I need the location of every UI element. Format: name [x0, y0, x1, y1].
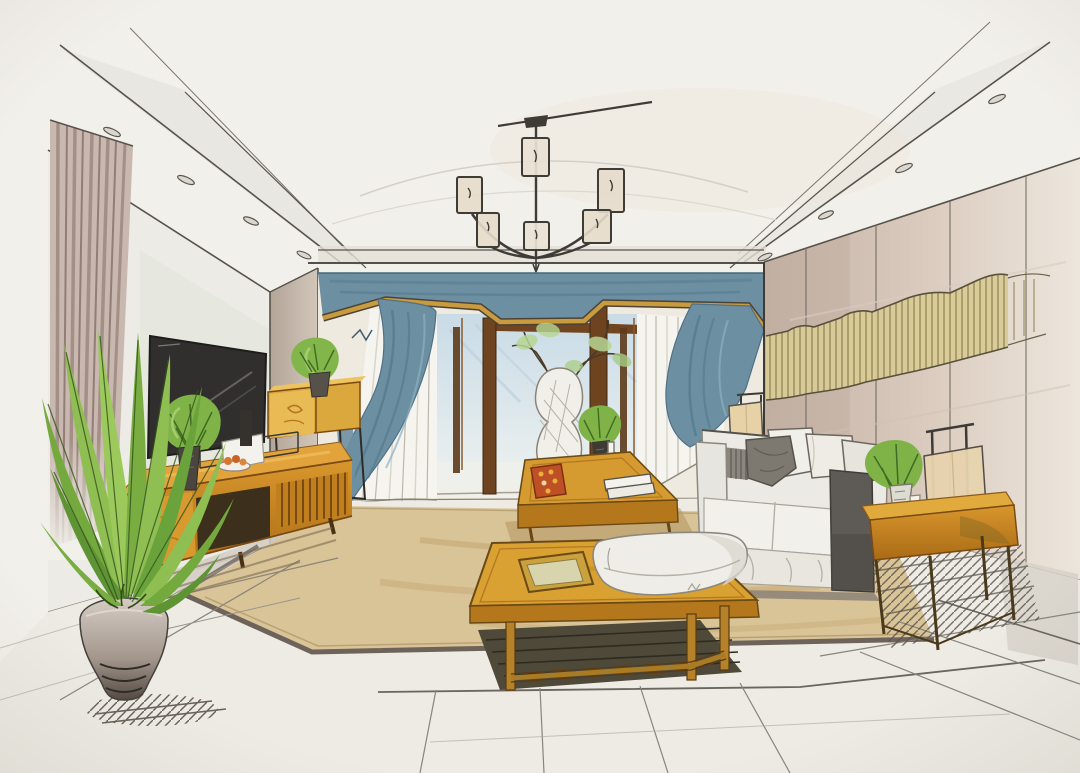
paper-vignette	[0, 0, 1080, 773]
sketch-canvas: Hand-drawn marker-and-ink one-point-pers…	[0, 0, 1080, 773]
interior-sketch: Hand-drawn marker-and-ink one-point-pers…	[0, 0, 1080, 773]
